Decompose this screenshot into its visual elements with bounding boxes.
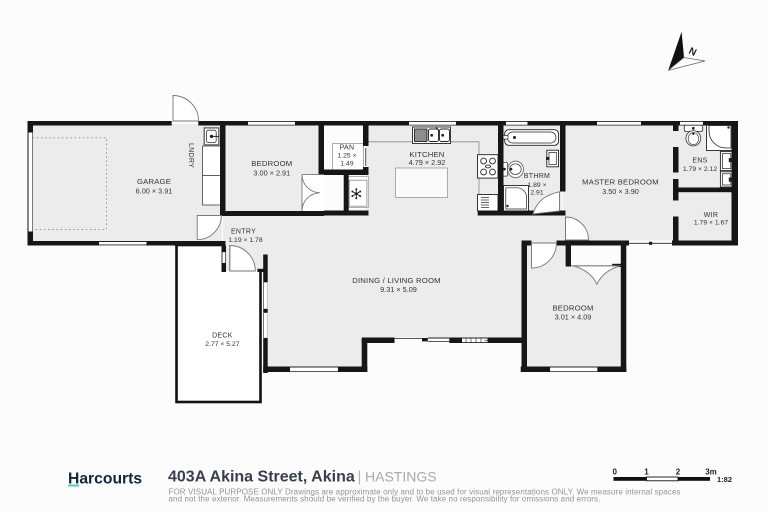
svg-text:and not the exterior. Measurem: and not the exterior. Measurements shoul…: [169, 495, 601, 504]
svg-text:1:82: 1:82: [717, 475, 732, 484]
svg-text:6.00 × 3.91: 6.00 × 3.91: [136, 187, 173, 196]
svg-text:MASTER BEDROOM: MASTER BEDROOM: [582, 177, 659, 186]
svg-text:1.89 ×: 1.89 ×: [527, 182, 546, 189]
svg-text:ENS: ENS: [692, 158, 707, 165]
svg-text:403A Akina Street, Akina: 403A Akina Street, Akina: [168, 469, 355, 486]
svg-text:9.31 × 5.09: 9.31 × 5.09: [380, 285, 417, 294]
svg-text:1.25 ×: 1.25 ×: [337, 153, 356, 160]
svg-text:BEDROOM: BEDROOM: [251, 159, 292, 168]
svg-text:2.77 × 5.27: 2.77 × 5.27: [205, 341, 239, 348]
svg-text:2.91: 2.91: [530, 190, 543, 197]
svg-text:LNDRY: LNDRY: [187, 143, 194, 168]
svg-text:BTHRM: BTHRM: [524, 173, 550, 180]
svg-text:3.50 × 3.90: 3.50 × 3.90: [602, 187, 639, 196]
svg-text:DINING / LIVING ROOM: DINING / LIVING ROOM: [352, 276, 441, 285]
svg-text:3.01 × 4.09: 3.01 × 4.09: [555, 313, 592, 322]
svg-text:|: |: [358, 469, 362, 486]
svg-text:0: 0: [612, 468, 617, 477]
svg-text:PAN: PAN: [340, 145, 355, 152]
svg-text:ENTRY: ENTRY: [231, 229, 256, 236]
svg-text:WIR: WIR: [704, 212, 719, 219]
svg-text:2: 2: [676, 468, 681, 477]
svg-text:1: 1: [644, 468, 649, 477]
svg-text:4.79 × 2.92: 4.79 × 2.92: [409, 158, 446, 167]
svg-text:GARAGE: GARAGE: [137, 177, 171, 186]
svg-text:HASTINGS: HASTINGS: [365, 469, 437, 485]
svg-text:1.79 × 2.12: 1.79 × 2.12: [683, 166, 717, 173]
svg-text:1.79 × 1.67: 1.79 × 1.67: [694, 220, 728, 227]
svg-text:1.49: 1.49: [340, 161, 353, 168]
svg-text:BEDROOM: BEDROOM: [552, 304, 593, 313]
svg-text:3.00 × 2.91: 3.00 × 2.91: [253, 169, 290, 178]
svg-text:3m: 3m: [705, 468, 717, 477]
svg-text:DECK: DECK: [212, 332, 233, 339]
svg-text:1.19 × 1.78: 1.19 × 1.78: [228, 237, 262, 244]
